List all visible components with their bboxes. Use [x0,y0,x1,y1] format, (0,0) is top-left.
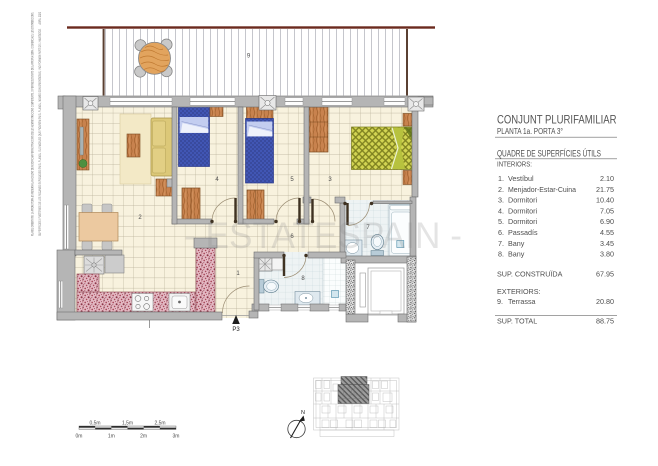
svg-text:3.45: 3.45 [600,239,614,248]
svg-text:N: N [301,410,305,416]
svg-text:P3: P3 [232,327,240,333]
svg-text:1,5m: 1,5m [122,421,133,427]
svg-text:- ESTATESPAIN -: - ESTATESPAIN - [184,215,462,256]
svg-text:2.10: 2.10 [600,174,614,183]
svg-text:INTERIORS:: INTERIORS: [497,160,532,169]
svg-text:3.80: 3.80 [600,250,614,259]
svg-text:0m: 0m [76,434,83,440]
svg-text:5.: 5. [498,217,504,226]
svg-text:3m: 3m [173,434,180,440]
svg-text:Dormitori: Dormitori [508,217,538,226]
svg-text:88.75: 88.75 [596,317,614,326]
svg-text:0,5m: 0,5m [89,421,100,427]
svg-text:20.80: 20.80 [596,297,614,306]
svg-text:4.55: 4.55 [600,228,614,237]
svg-text:6.: 6. [498,228,504,237]
svg-text:CONJUNT PLURIFAMILIAR: CONJUNT PLURIFAMILIAR [497,113,617,127]
svg-text:1.: 1. [498,174,504,183]
svg-text:PLANOL ORIENTATIU: LA PROMOTOR: PLANOL ORIENTATIU: LA PROMOTORA ES RESER… [31,12,35,236]
svg-text:8.: 8. [498,250,504,259]
svg-text:Bany: Bany [508,239,525,248]
svg-text:9.: 9. [497,297,503,306]
svg-text:2,5m: 2,5m [154,421,165,427]
svg-text:1m: 1m [108,434,115,440]
svg-text:7.: 7. [498,239,504,248]
svg-text:6.90: 6.90 [600,217,614,226]
svg-text:Menjador-Estar-Cuina: Menjador-Estar-Cuina [508,185,576,194]
svg-text:3.: 3. [498,196,504,205]
svg-text:SUP. TOTAL: SUP. TOTAL [497,317,537,326]
svg-text:2.: 2. [498,185,504,194]
svg-text:Terrassa: Terrassa [508,297,536,306]
svg-text:10.40: 10.40 [596,196,614,205]
svg-text:21.75: 21.75 [596,185,614,194]
svg-text:PLANTA 1a. PORTA 3°: PLANTA 1a. PORTA 3° [497,127,563,136]
svg-text:SUPERFICIES I FUSTERIES DE LES: SUPERFICIES I FUSTERIES DE LES FACANES E… [38,12,42,236]
svg-text:Bany: Bany [508,250,525,259]
svg-text:EXTERIORS:: EXTERIORS: [497,287,541,296]
svg-text:QUADRE DE SUPERFÍCIES ÚTILS: QUADRE DE SUPERFÍCIES ÚTILS [497,149,601,159]
svg-text:67.95: 67.95 [596,270,614,279]
svg-text:SUP. CONSTRUÏDA: SUP. CONSTRUÏDA [497,270,563,279]
svg-text:Dormitori: Dormitori [508,206,538,215]
svg-text:Dormitori: Dormitori [508,196,538,205]
svg-text:Passadís: Passadís [508,228,538,237]
svg-text:Vestíbul: Vestíbul [508,174,534,183]
svg-text:4.: 4. [498,206,504,215]
svg-text:7.05: 7.05 [600,206,614,215]
svg-text:2m: 2m [140,434,147,440]
